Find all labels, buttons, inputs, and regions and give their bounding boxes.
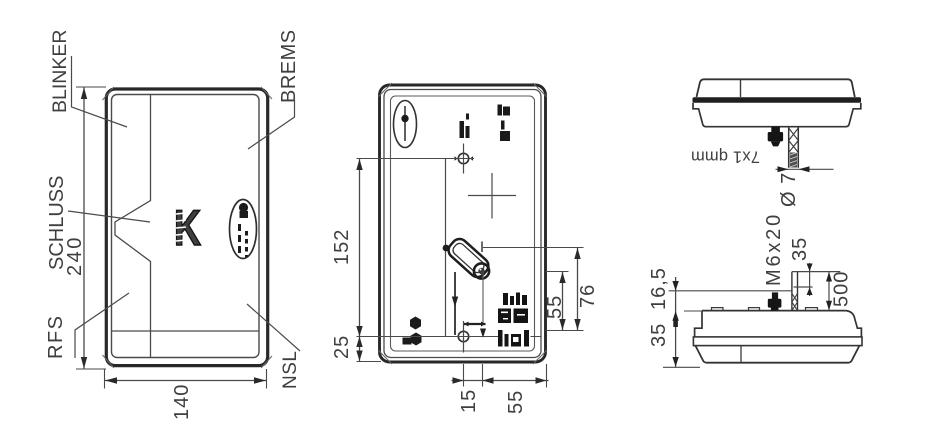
svg-text:35: 35 <box>648 323 670 347</box>
svg-text:16,5: 16,5 <box>648 267 670 310</box>
svg-text:25: 25 <box>331 335 353 359</box>
svg-text:140: 140 <box>171 384 193 420</box>
svg-text:Ø 7: Ø 7 <box>778 172 800 207</box>
svg-text:240: 240 <box>64 235 86 276</box>
svg-text:55: 55 <box>505 390 527 414</box>
svg-text:35: 35 <box>789 237 811 261</box>
svg-text:7x1 qmm: 7x1 qmm <box>691 148 760 166</box>
svg-text:NSL: NSL <box>280 351 301 389</box>
svg-text:BLINKER: BLINKER <box>49 30 71 113</box>
svg-text:RFS: RFS <box>45 315 67 360</box>
svg-text:BREMS: BREMS <box>278 29 300 103</box>
svg-text:M6x20: M6x20 <box>763 212 785 286</box>
svg-text:55: 55 <box>544 295 566 319</box>
svg-text:500: 500 <box>831 271 853 307</box>
svg-text:15: 15 <box>458 389 480 413</box>
svg-text:152: 152 <box>331 229 353 265</box>
svg-text:76: 76 <box>577 284 599 308</box>
